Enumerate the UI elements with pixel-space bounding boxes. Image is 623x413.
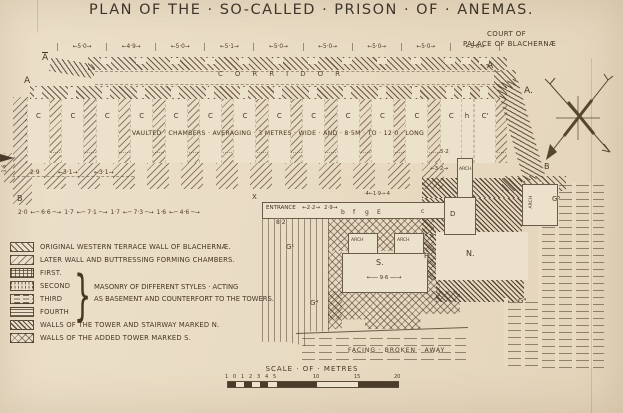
door-gap bbox=[34, 87, 42, 98]
room-letter-g: g bbox=[365, 210, 369, 216]
dimension-label: ←5·1→ bbox=[204, 43, 253, 51]
legend-item-label: FOURTH bbox=[40, 308, 69, 316]
scale-segment bbox=[260, 382, 268, 387]
chamber-label: C bbox=[414, 112, 419, 120]
scale-title: SCALE · OF · METRES bbox=[232, 366, 392, 373]
chamber-label: h bbox=[465, 112, 469, 120]
tower-s-label: S. bbox=[376, 259, 384, 267]
section-marker-a: A bbox=[24, 77, 30, 86]
door-gap bbox=[137, 87, 145, 98]
legend-item-label: THIRD bbox=[40, 295, 62, 303]
pillar-d-label: D bbox=[450, 211, 455, 218]
p-hatchB-swatch bbox=[10, 255, 34, 265]
door-gap bbox=[480, 87, 488, 98]
door-gap bbox=[240, 87, 248, 98]
corridor-label: CORRIDOR bbox=[218, 71, 352, 78]
buttress-foot bbox=[388, 163, 410, 189]
chamber-label: C bbox=[380, 112, 385, 120]
door-gap bbox=[102, 87, 110, 98]
arch-label: ARCH bbox=[459, 168, 472, 173]
arch-room-g5 bbox=[522, 184, 558, 226]
tower-n-label: N. bbox=[466, 250, 475, 258]
dimension-label: 8·2 bbox=[276, 220, 286, 226]
area-label-g5: G⁵ bbox=[552, 196, 560, 203]
chamber-label: C bbox=[242, 112, 247, 120]
scale-tick-label: 10 bbox=[313, 374, 319, 380]
chambers-note: VAULTED · CHAMBERS · AVERAGING · 3 METRE… bbox=[88, 131, 468, 137]
arch-label: ARCH bbox=[351, 239, 364, 244]
dimension-label: 2·9→ bbox=[324, 206, 337, 212]
legend-item: FIRST. bbox=[10, 266, 62, 279]
scale-tick-label: 3 bbox=[257, 374, 260, 380]
chamber-cell: C bbox=[27, 99, 50, 163]
buttress-foot bbox=[147, 163, 169, 189]
door-gap bbox=[206, 87, 214, 98]
point-label-h: H bbox=[424, 253, 429, 260]
legend-item: WALLS OF THE ADDED TOWER MARKED S. bbox=[10, 331, 191, 344]
scale-tick-label: 15 bbox=[354, 374, 360, 380]
scale-segment bbox=[268, 382, 277, 387]
dimension-label: ·4←1·9→·4 bbox=[364, 192, 390, 197]
buttress-foot bbox=[319, 163, 341, 189]
legend-brace: } bbox=[74, 264, 91, 327]
parapet-notch bbox=[136, 58, 146, 64]
legend-masonry-note: MASONRY OF DIFFERENT STYLES · ACTING bbox=[94, 284, 238, 291]
tower-s-room bbox=[342, 253, 428, 293]
section-marker-a: A bbox=[487, 62, 493, 71]
scale-tick-label: 2 bbox=[249, 374, 252, 380]
scale-tick-label: 1 bbox=[241, 374, 244, 380]
chamber-label: C bbox=[346, 112, 351, 120]
dimension-label: ←5·0→ bbox=[450, 43, 499, 51]
buttress-foot bbox=[44, 163, 66, 189]
legend-item: ORIGINAL WESTERN TERRACE WALL OF BLACHER… bbox=[10, 240, 231, 253]
chamber-label: C bbox=[208, 112, 213, 120]
door-gap bbox=[274, 87, 282, 98]
dimension-label: ←── 9·6 ──→ bbox=[352, 276, 416, 282]
door-gap bbox=[378, 87, 386, 98]
chamber-label: C' bbox=[482, 112, 489, 120]
chamber-label: C bbox=[36, 112, 41, 120]
buttress-foot bbox=[353, 163, 375, 189]
dimension-label: 1·6 bbox=[157, 209, 167, 216]
corridor-letter-c: c bbox=[421, 209, 424, 215]
scale-tick-label: 5 bbox=[273, 374, 276, 380]
p-cross-swatch bbox=[10, 333, 34, 343]
door-gap bbox=[343, 87, 351, 98]
scanned-plan-page: PLAN OF THE · SO-CALLED · PRISON · OF · … bbox=[0, 0, 623, 413]
scale-segment bbox=[252, 382, 260, 387]
parapet-notch bbox=[308, 58, 318, 64]
legend-item-label: WALLS OF THE ADDED TOWER MARKED S. bbox=[40, 334, 191, 342]
arch-room bbox=[348, 233, 378, 255]
dimension-label: ←5·0→ bbox=[57, 43, 106, 51]
scale-segment bbox=[228, 382, 236, 387]
door-gap bbox=[462, 87, 470, 98]
buttress-foot bbox=[181, 163, 203, 189]
chamber-label: C bbox=[70, 112, 75, 120]
area-label-b: B bbox=[17, 195, 23, 203]
scale-tick-label: 0 bbox=[233, 374, 236, 380]
compass-rose-icon bbox=[534, 72, 622, 166]
buttress-foot bbox=[285, 163, 307, 189]
dimension-label: 5·2 bbox=[440, 150, 449, 156]
dimension-label: ←5·0→ bbox=[253, 43, 302, 51]
p-brick-swatch bbox=[10, 268, 34, 278]
tower-n-room bbox=[436, 232, 528, 280]
chamber-label: C bbox=[311, 112, 316, 120]
dimension-label: 2·9 bbox=[30, 170, 40, 176]
dimension-label: 1·6 bbox=[2, 165, 7, 173]
parapet-notch bbox=[411, 58, 421, 64]
legend: ORIGINAL WESTERN TERRACE WALL OF BLACHER… bbox=[10, 240, 300, 346]
parapet-notch bbox=[342, 58, 352, 64]
p-hlines-swatch bbox=[10, 307, 34, 317]
door-gap bbox=[412, 87, 420, 98]
area-label-g4: G⁴ bbox=[310, 300, 318, 307]
legend-rows: ORIGINAL WESTERN TERRACE WALL OF BLACHER… bbox=[10, 240, 300, 346]
pillar-d bbox=[444, 197, 476, 235]
legend-item-label: WALLS OF THE TOWER AND STAIRWAY MARKED N… bbox=[40, 321, 219, 329]
parapet-notch bbox=[205, 58, 215, 64]
dimension-label: ←3·1→ bbox=[58, 170, 78, 176]
broken-away-region bbox=[298, 332, 466, 360]
legend-masonry-note: AS BASEMENT AND COUNTERFORT TO THE TOWER… bbox=[94, 296, 274, 303]
dimension-label: ←2·2→ bbox=[302, 206, 320, 212]
arch-label: ARCH bbox=[397, 239, 410, 244]
scale-tick-label: 1 bbox=[225, 374, 228, 380]
p-vdash-swatch bbox=[10, 281, 34, 291]
room-letter-f: f bbox=[353, 210, 355, 216]
scale-bar bbox=[227, 381, 399, 388]
section-marker-a: A bbox=[42, 52, 48, 63]
arch-room bbox=[394, 233, 424, 255]
entrance-label: ENTRANCE bbox=[266, 206, 296, 212]
legend-item-label: ORIGINAL WESTERN TERRACE WALL OF BLACHER… bbox=[40, 243, 231, 251]
court-label-line1: COURT OF bbox=[487, 31, 526, 38]
page-title: PLAN OF THE · SO-CALLED · PRISON · OF · … bbox=[0, 3, 623, 18]
scale-segment bbox=[358, 382, 399, 387]
room-letter-e: E bbox=[377, 210, 381, 216]
chamber-label: C bbox=[277, 112, 282, 120]
broken-away-region bbox=[504, 298, 542, 366]
dimension-label: ←4·9→ bbox=[106, 43, 155, 51]
door-gap bbox=[309, 87, 317, 98]
legend-item-label: FIRST. bbox=[40, 269, 62, 277]
legend-item: WALLS OF THE TOWER AND STAIRWAY MARKED N… bbox=[10, 318, 219, 331]
terrace-wall-lower bbox=[30, 86, 507, 99]
tower-s-wall bbox=[328, 291, 460, 329]
dimension-label: ←─ 6·6 ─→ bbox=[31, 209, 62, 216]
door-gap bbox=[68, 87, 76, 98]
scale-segment bbox=[236, 382, 244, 387]
door-gap bbox=[446, 87, 454, 98]
scale-tick-label: 4 bbox=[265, 374, 268, 380]
legend-item: LATER WALL AND BUTTRESSING FORMING CHAMB… bbox=[10, 253, 235, 266]
door-gap bbox=[171, 87, 179, 98]
point-label-x: X bbox=[252, 194, 257, 201]
dimension-label: ←─ 7·3 ─→ bbox=[123, 209, 154, 216]
chamber-label: C bbox=[174, 112, 179, 120]
facing-broken-away-label: FACING · BROKEN · AWAY bbox=[348, 348, 445, 354]
chamber-cell: C bbox=[61, 99, 84, 163]
parapet-notch bbox=[461, 58, 471, 64]
dimension-label: ←3·2→ bbox=[430, 167, 448, 173]
dimension-label: ←5·0→ bbox=[303, 43, 352, 51]
dimension-label: ←─ 7·1 ─→ bbox=[77, 209, 108, 216]
parapet-notch bbox=[170, 58, 180, 64]
dimension-label: ←─ 4·6 ─→ bbox=[169, 209, 200, 216]
parapet-notch bbox=[377, 58, 387, 64]
bottom-dimension-row: 2·0←─ 6·6 ─→1·7←─ 7·1 ─→1·7←─ 7·3 ─→1·6←… bbox=[18, 209, 270, 216]
parapet-notch bbox=[101, 58, 111, 64]
terrace-wall-upper bbox=[88, 57, 507, 70]
p-dense-swatch bbox=[10, 320, 34, 330]
parapet-notch bbox=[239, 58, 249, 64]
p-hatchA-swatch bbox=[10, 242, 34, 252]
corridor-dotted-line bbox=[95, 84, 500, 85]
dimension-label: 2·0 bbox=[18, 209, 28, 216]
legend-item-label: LATER WALL AND BUTTRESSING FORMING CHAMB… bbox=[40, 256, 235, 264]
buttress-foot bbox=[216, 163, 238, 189]
scale-ticks: 1012345101520 bbox=[227, 374, 407, 380]
dimension-label: 1·7 bbox=[64, 209, 74, 216]
buttress-foot bbox=[78, 163, 100, 189]
legend-item: SECOND bbox=[10, 279, 70, 292]
legend-item: FOURTH bbox=[10, 305, 69, 318]
dimension-label: ←3·1→ bbox=[94, 170, 114, 176]
area-label-b: B bbox=[544, 163, 550, 171]
dimension-label: ←5·0→ bbox=[155, 43, 204, 51]
parapet-notch bbox=[445, 58, 455, 64]
scale-segment bbox=[317, 382, 358, 387]
tower-n-wall bbox=[474, 198, 522, 232]
buttress-foot bbox=[113, 163, 135, 189]
dimension-label: ←5·0→ bbox=[352, 43, 401, 51]
legend-item: THIRD bbox=[10, 292, 62, 305]
chamber-label: C bbox=[105, 112, 110, 120]
fold-crease bbox=[37, 0, 38, 32]
section-marker-a: A. bbox=[524, 87, 533, 96]
chamber-label: C bbox=[139, 112, 144, 120]
area-label-g4: G⁴ bbox=[518, 298, 526, 305]
scale-tick-label: 20 bbox=[394, 374, 400, 380]
fold-crease bbox=[591, 58, 592, 413]
chamber-cell: C' bbox=[474, 99, 496, 163]
scale-segment bbox=[244, 382, 252, 387]
scale-segment bbox=[277, 382, 317, 387]
parapet-notch bbox=[273, 58, 283, 64]
top-dimension-row: ←5·0→←4·9→←5·0→←5·1→←5·0→←5·0→←5·0→←5·0→… bbox=[57, 43, 500, 51]
room-letter-b: b bbox=[341, 210, 345, 216]
chamber-label: C bbox=[449, 112, 454, 120]
dimension-label: ←5·0→ bbox=[401, 43, 450, 51]
arch-label: ARCH bbox=[530, 196, 535, 209]
buttress-foot bbox=[250, 163, 272, 189]
dimension-label: 1·7 bbox=[110, 209, 120, 216]
legend-item-label: SECOND bbox=[40, 282, 70, 290]
p-hdash2-swatch bbox=[10, 294, 34, 304]
